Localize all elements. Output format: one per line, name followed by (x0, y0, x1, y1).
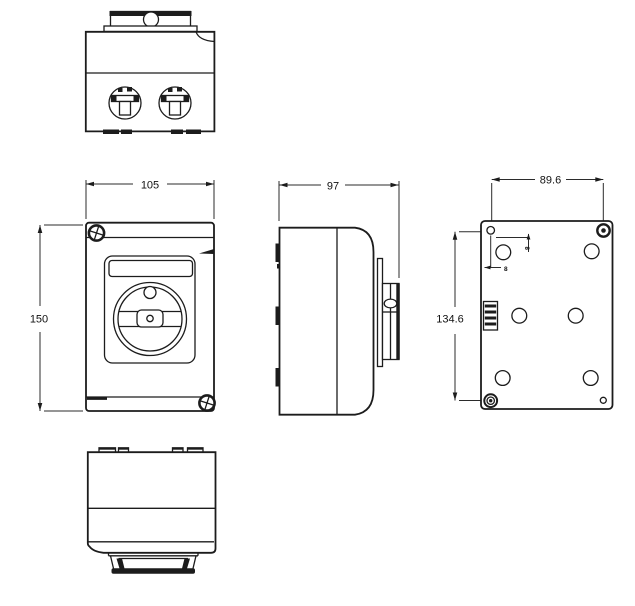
bottom-view-body (88, 452, 216, 553)
corner-hole (600, 397, 606, 403)
mount-tab (277, 264, 280, 269)
dim-front-width: 105 (86, 180, 214, 220)
din-clip (484, 302, 498, 331)
foot (103, 130, 119, 135)
handle-base-plate (104, 26, 197, 32)
handle-shaft-circle (144, 12, 159, 27)
knockout-left (109, 87, 141, 119)
top-view-body (86, 32, 215, 132)
dim-back-width: 89.6 (492, 175, 604, 226)
side-view: 97 (276, 181, 400, 415)
bottom-handle (109, 553, 199, 574)
mount-tab (276, 307, 280, 326)
dim-label-front-width: 105 (141, 180, 159, 192)
bezel-plate (378, 259, 383, 367)
mounting-hole (496, 245, 511, 260)
dim-label-side-depth: 97 (327, 181, 339, 193)
knockout-right (159, 87, 191, 119)
mounting-hole (583, 371, 598, 386)
rotary-switch (114, 283, 187, 356)
mount-tab (276, 244, 280, 263)
foot (186, 130, 201, 135)
side-body (280, 228, 374, 415)
mounting-hole (495, 371, 510, 386)
dim-label-back-height: 134.6 (436, 314, 464, 326)
top-view (86, 11, 215, 134)
drawing-svg: 105 150 (0, 0, 635, 606)
mount-tab (276, 368, 280, 387)
phillips-screw-icon (198, 394, 216, 412)
dim-label-offset-left: 8 (504, 266, 508, 273)
dim-front-height: 150 (30, 225, 83, 411)
foot (121, 130, 132, 135)
knob-profile (383, 284, 400, 360)
label-strip (109, 261, 193, 277)
corner-grommet (484, 394, 497, 407)
bottom-view (88, 448, 216, 574)
technical-drawing-sheet: 105 150 (0, 0, 635, 606)
corner-hole (487, 227, 495, 235)
dim-label-front-height: 150 (30, 314, 48, 326)
switch-center-dot (147, 315, 153, 321)
dim-label-offset-top: 8 (525, 246, 532, 250)
mounting-hole (568, 308, 583, 323)
back-view: 89.6 134.6 (436, 175, 612, 410)
corner-grommet (597, 224, 609, 236)
dim-back-height: 134.6 (436, 232, 484, 401)
phillips-screw-icon (88, 224, 106, 242)
mounting-hole (512, 308, 527, 323)
switch-indicator-dot (144, 287, 156, 299)
foot (171, 130, 183, 135)
front-view: 105 150 (30, 180, 216, 412)
dim-label-back-width: 89.6 (540, 175, 561, 187)
mounting-hole (584, 244, 599, 259)
